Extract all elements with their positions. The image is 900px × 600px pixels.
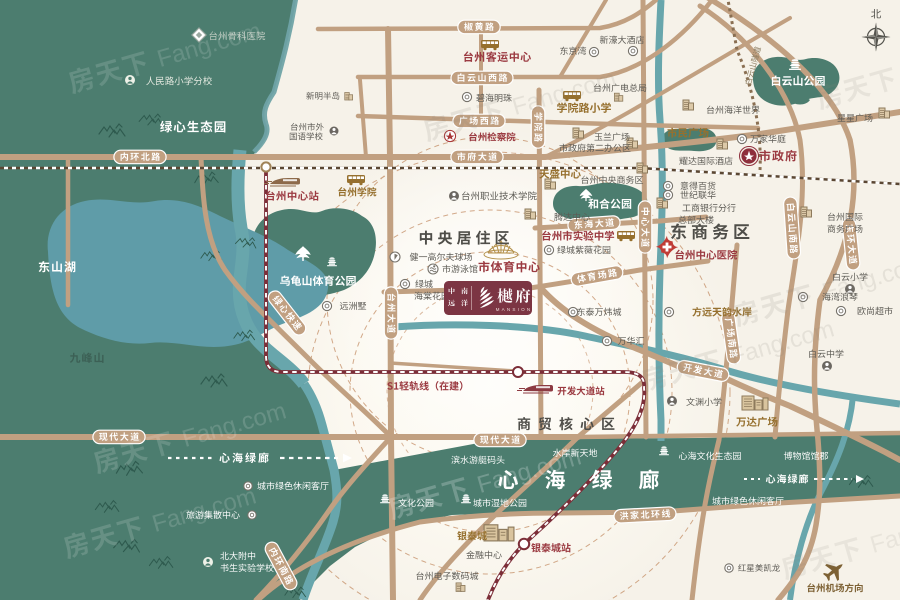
svg-text:MANSION: MANSION — [496, 307, 533, 312]
